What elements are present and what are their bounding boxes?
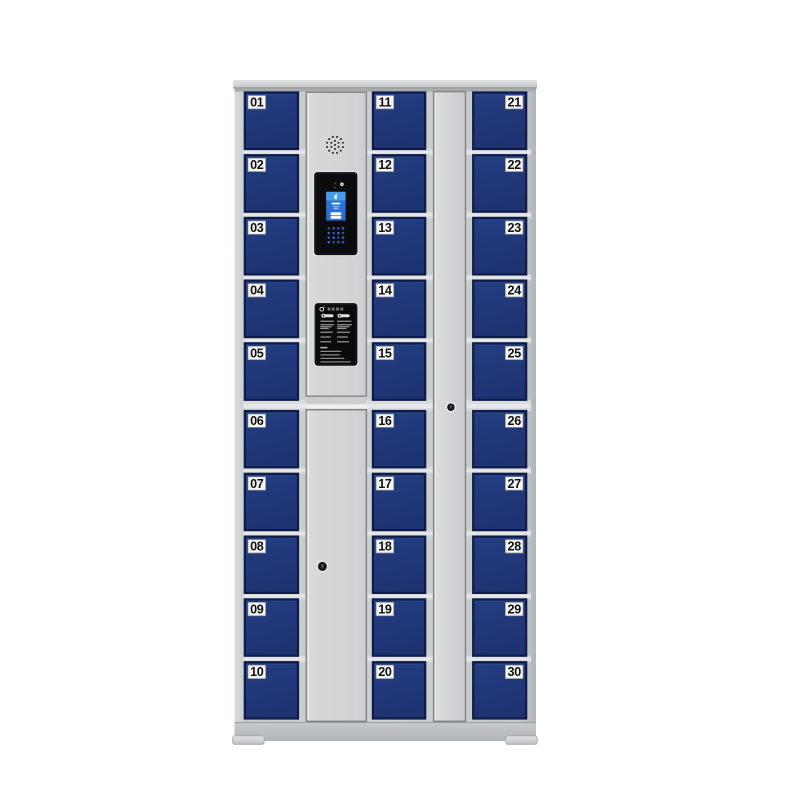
svg-text:14: 14: [378, 284, 392, 298]
svg-text:17: 17: [378, 477, 392, 491]
svg-text:30: 30: [507, 665, 521, 679]
svg-text:26: 26: [507, 414, 521, 428]
svg-text:12: 12: [378, 158, 392, 172]
svg-text:01: 01: [250, 96, 264, 110]
svg-text:29: 29: [507, 602, 521, 616]
svg-text:06: 06: [250, 414, 264, 428]
svg-text:02: 02: [250, 158, 264, 172]
svg-text:23: 23: [507, 221, 521, 235]
svg-text:15: 15: [378, 346, 392, 360]
svg-text:22: 22: [507, 158, 521, 172]
svg-text:08: 08: [250, 540, 264, 554]
svg-text:03: 03: [250, 221, 264, 235]
svg-text:11: 11: [379, 96, 392, 110]
svg-text:07: 07: [250, 477, 264, 491]
svg-text:04: 04: [250, 284, 264, 298]
svg-text:10: 10: [250, 665, 264, 679]
svg-text:09: 09: [250, 602, 264, 616]
svg-text:19: 19: [378, 602, 392, 616]
svg-text:27: 27: [507, 477, 521, 491]
svg-text:18: 18: [378, 540, 392, 554]
svg-text:25: 25: [507, 346, 521, 360]
svg-text:24: 24: [507, 284, 521, 298]
svg-text:05: 05: [250, 346, 264, 360]
svg-text:20: 20: [378, 665, 392, 679]
svg-text:28: 28: [507, 540, 521, 554]
svg-text:21: 21: [507, 96, 521, 110]
svg-text:16: 16: [378, 414, 392, 428]
svg-text:13: 13: [378, 221, 392, 235]
